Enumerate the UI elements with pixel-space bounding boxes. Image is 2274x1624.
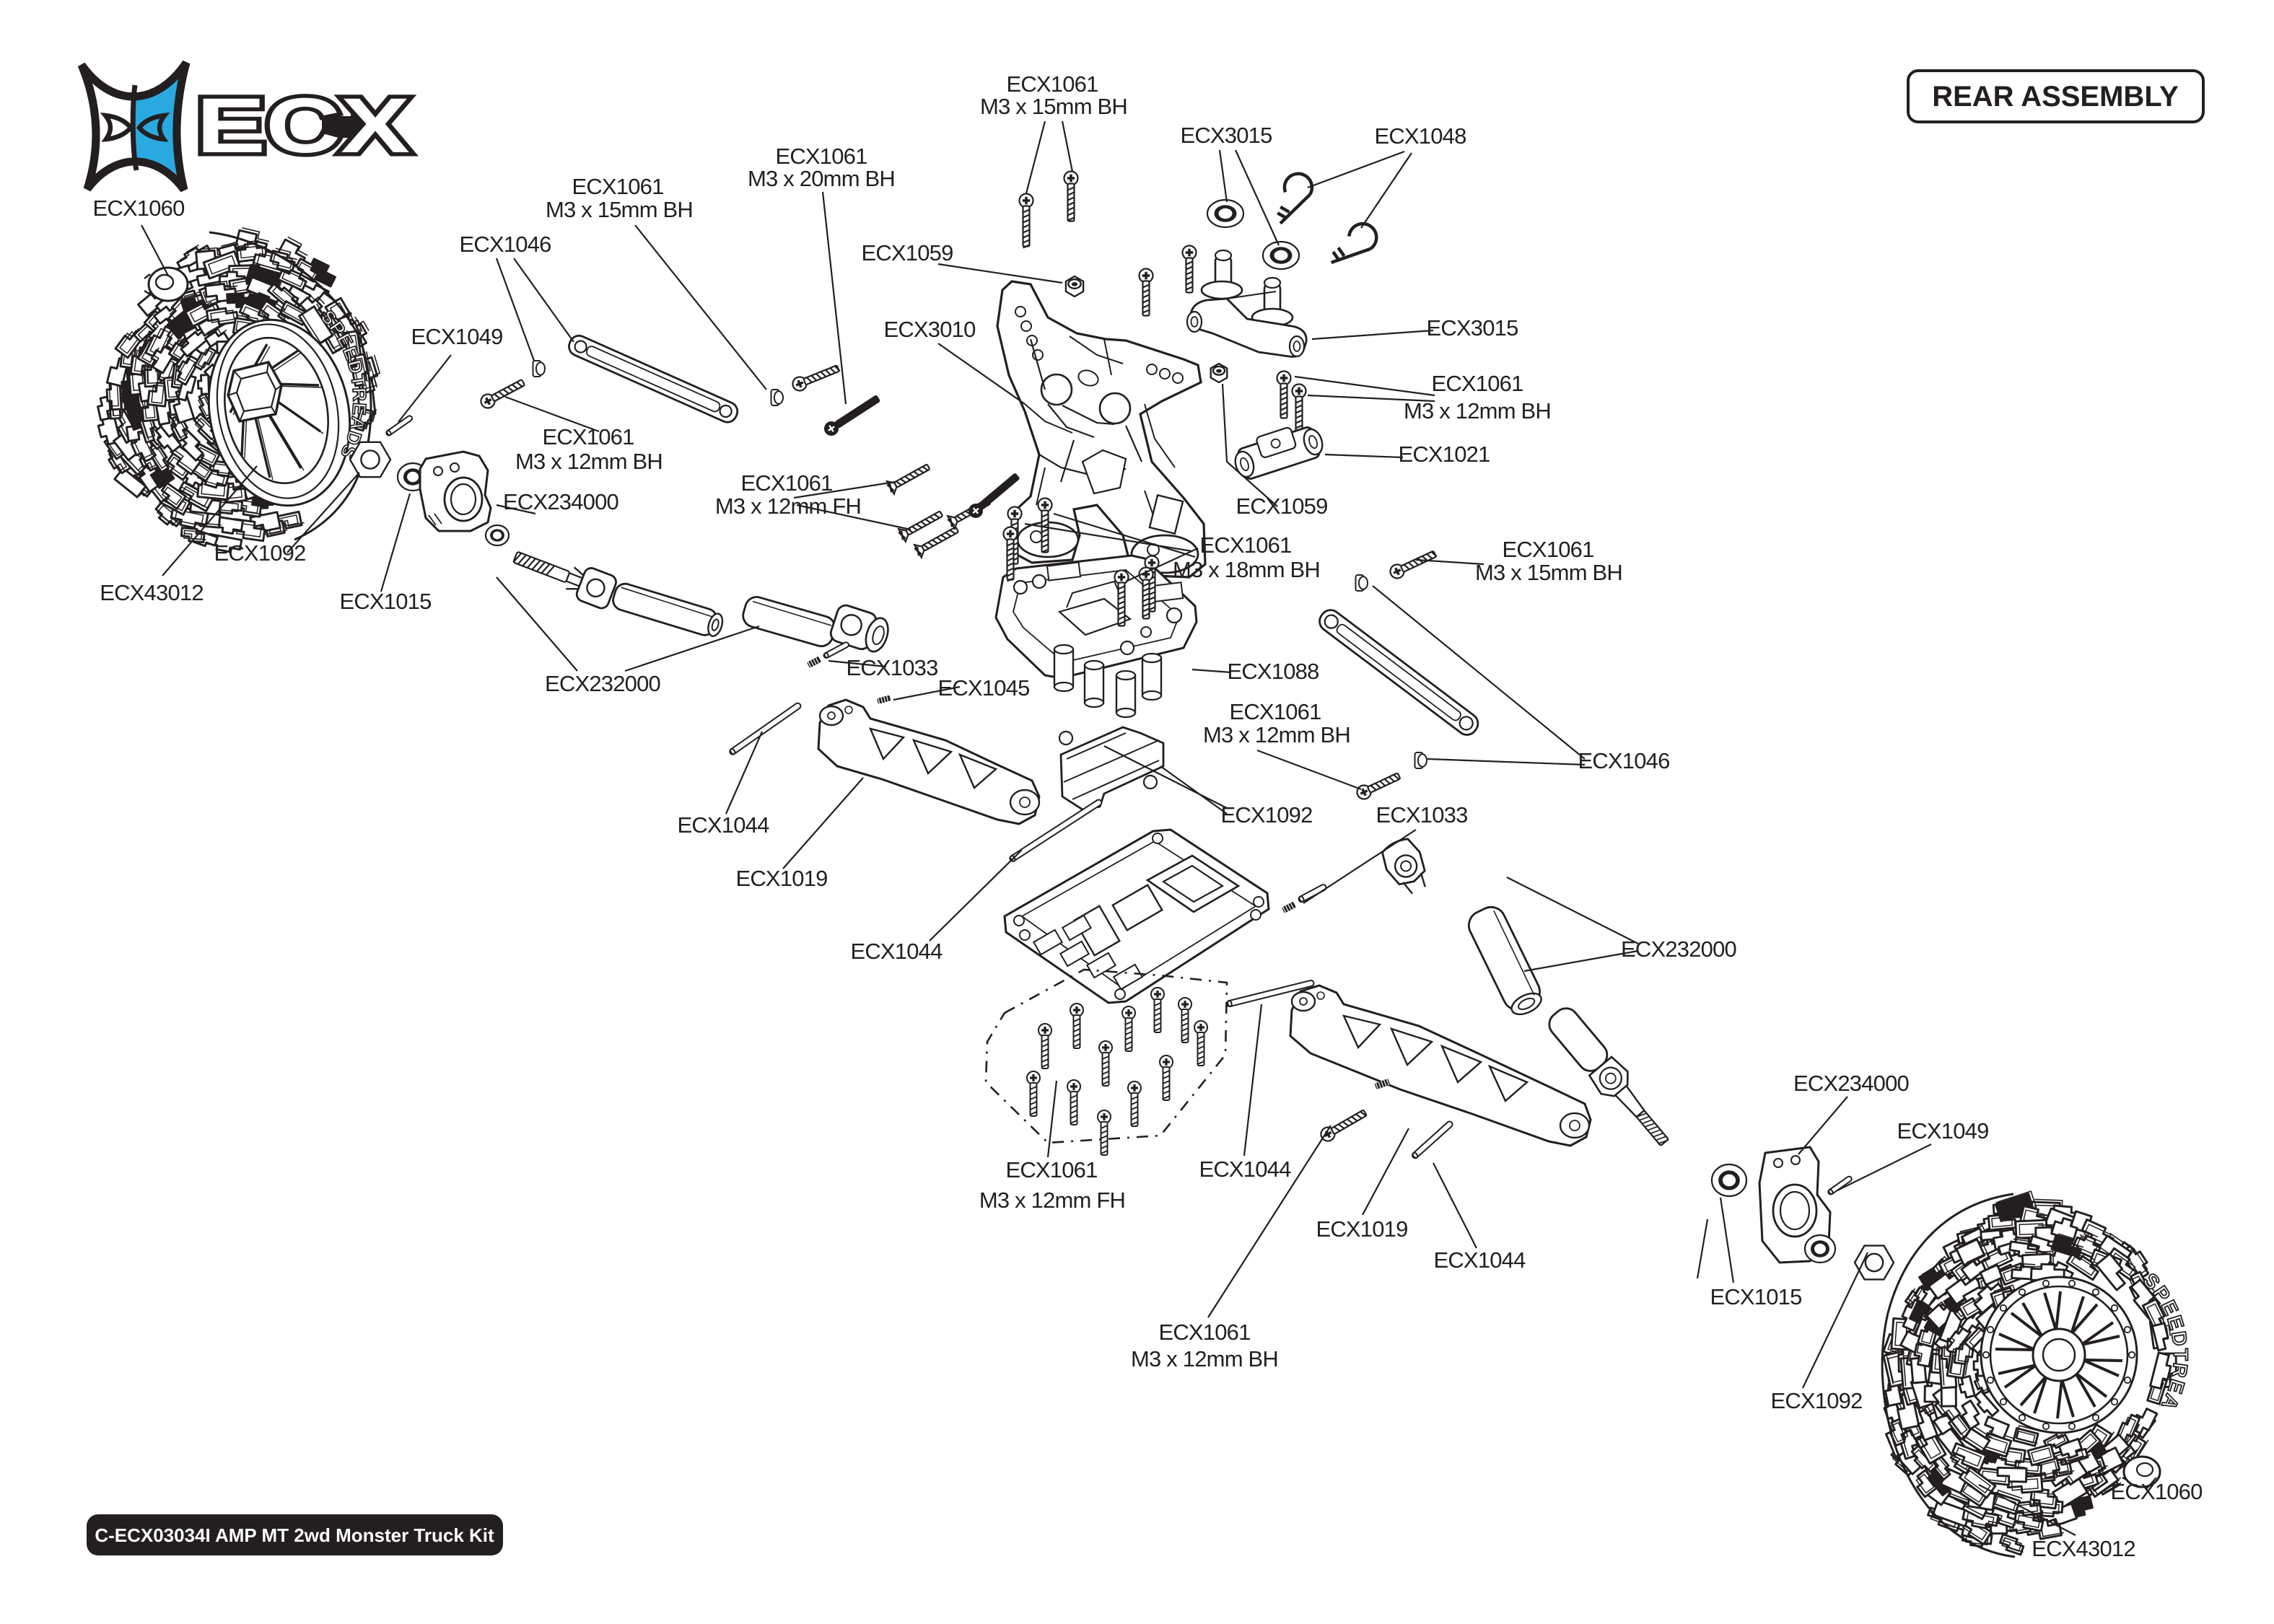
svg-text:M3 x 20mm BH: M3 x 20mm BH	[748, 166, 895, 191]
svg-text:C-ECX03034I AMP MT 2wd Monster: C-ECX03034I AMP MT 2wd Monster Truck Kit	[95, 1524, 494, 1546]
svg-text:ECX234000: ECX234000	[503, 489, 619, 514]
svg-text:ECX1088: ECX1088	[1227, 659, 1319, 684]
svg-text:ECX1061: ECX1061	[1229, 699, 1321, 724]
svg-text:ECX1048: ECX1048	[1374, 123, 1466, 149]
svg-text:ECX232000: ECX232000	[545, 671, 661, 696]
svg-text:ECX: ECX	[196, 82, 410, 169]
svg-text:ECX1019: ECX1019	[1316, 1216, 1407, 1242]
svg-text:ECX234000: ECX234000	[1793, 1071, 1910, 1096]
svg-text:ECX1044: ECX1044	[1433, 1247, 1526, 1273]
svg-text:ECX1061: ECX1061	[1502, 537, 1593, 562]
svg-text:ECX1015: ECX1015	[339, 589, 431, 614]
svg-text:ECX1049: ECX1049	[411, 324, 502, 349]
svg-text:M3 x 12mm BH: M3 x 12mm BH	[515, 449, 662, 474]
svg-text:M3 x 12mm FH: M3 x 12mm FH	[715, 493, 861, 519]
svg-text:M3 x 15mm BH: M3 x 15mm BH	[546, 197, 693, 222]
svg-text:ECX1015: ECX1015	[1710, 1284, 1801, 1309]
svg-text:ECX1033: ECX1033	[1376, 802, 1467, 828]
svg-text:ECX1061: ECX1061	[1006, 71, 1098, 97]
svg-text:M3 x 12mm BH: M3 x 12mm BH	[1203, 722, 1350, 747]
svg-text:ECX1019: ECX1019	[735, 866, 827, 891]
svg-text:ECX1060: ECX1060	[92, 196, 185, 221]
svg-text:ECX1044: ECX1044	[1199, 1156, 1291, 1182]
svg-text:M3 x 12mm FH: M3 x 12mm FH	[979, 1188, 1125, 1213]
svg-text:ECX43012: ECX43012	[2032, 1536, 2135, 1561]
svg-text:ECX1061: ECX1061	[1158, 1320, 1250, 1345]
svg-text:ECX1092: ECX1092	[1220, 802, 1312, 828]
svg-text:ECX1046: ECX1046	[1578, 748, 1669, 773]
svg-text:ECX1092: ECX1092	[1770, 1388, 1862, 1413]
svg-text:ECX1059: ECX1059	[1236, 493, 1327, 519]
svg-text:ECX1046: ECX1046	[459, 232, 551, 257]
svg-text:ECX1044: ECX1044	[850, 939, 943, 964]
svg-text:ECX1061: ECX1061	[775, 144, 867, 169]
svg-text:ECX3010: ECX3010	[883, 317, 976, 342]
svg-text:ECX3015: ECX3015	[1180, 123, 1272, 148]
svg-text:ECX1033: ECX1033	[846, 655, 937, 680]
svg-text:ECX1044: ECX1044	[677, 812, 769, 838]
svg-text:M3 x 18mm BH: M3 x 18mm BH	[1173, 557, 1320, 582]
svg-text:ECX1049: ECX1049	[1897, 1118, 1988, 1144]
svg-text:ECX1061: ECX1061	[572, 174, 663, 199]
svg-text:REAR ASSEMBLY: REAR ASSEMBLY	[1932, 81, 2179, 113]
svg-text:ECX1061: ECX1061	[1431, 371, 1523, 396]
svg-text:ECX1061: ECX1061	[542, 424, 634, 449]
svg-text:M3 x 15mm BH: M3 x 15mm BH	[1475, 560, 1622, 585]
svg-text:ECX43012: ECX43012	[100, 580, 204, 605]
svg-text:ECX1061: ECX1061	[740, 470, 832, 496]
svg-text:ECX1061: ECX1061	[1005, 1157, 1097, 1182]
svg-text:ECX1045: ECX1045	[937, 675, 1029, 701]
svg-text:ECX232000: ECX232000	[1621, 936, 1737, 962]
svg-text:ECX1060: ECX1060	[2110, 1479, 2203, 1504]
svg-text:ECX3015: ECX3015	[1426, 315, 1518, 341]
svg-text:M3 x 15mm BH: M3 x 15mm BH	[980, 94, 1127, 119]
svg-text:ECX1021: ECX1021	[1398, 442, 1490, 467]
svg-text:ECX1059: ECX1059	[861, 240, 953, 265]
svg-text:ECX1092: ECX1092	[214, 540, 305, 566]
svg-text:M3 x 12mm BH: M3 x 12mm BH	[1131, 1346, 1278, 1371]
svg-text:ECX1061: ECX1061	[1199, 532, 1291, 558]
svg-text:M3 x 12mm BH: M3 x 12mm BH	[1404, 398, 1551, 423]
